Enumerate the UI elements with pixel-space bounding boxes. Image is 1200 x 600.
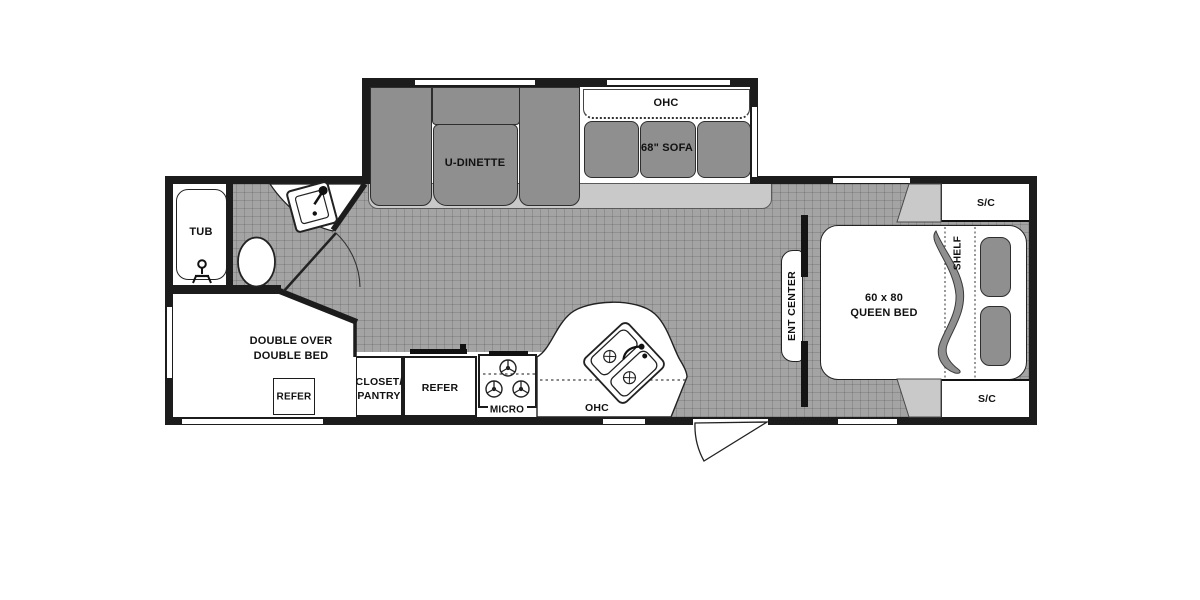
ent-center-label: ENT CENTER <box>786 271 798 341</box>
closet-label-line1: CLOSET/ <box>356 376 403 388</box>
toilet <box>238 238 275 287</box>
detail-overlay <box>0 0 1200 600</box>
tub-label: TUB <box>189 226 212 238</box>
double-bed-label-line1: DOUBLE OVER <box>250 335 333 347</box>
shelf-label: SHELF <box>953 236 964 270</box>
ohc-slideout-label: OHC <box>653 97 678 109</box>
closet-label-line2: PANTRY <box>357 390 400 402</box>
entry-door-swing <box>695 422 767 461</box>
burner-3 <box>513 381 529 397</box>
queen-bed-size-label: 60 x 80 <box>865 292 903 304</box>
sc-top-label: S/C <box>977 197 995 209</box>
sc-bottom-label: S/C <box>978 393 996 405</box>
tub-faucet-icon <box>193 260 211 283</box>
ohc-kitchen-label: OHC <box>585 402 609 414</box>
bed-platform-step-top <box>897 184 941 222</box>
dinette-label: U-DINETTE <box>445 157 505 169</box>
queen-bed-label: QUEEN BED <box>850 307 917 319</box>
stove-burners <box>486 360 529 397</box>
double-bed-label-line2: DOUBLE BED <box>254 350 329 362</box>
burner-1 <box>500 360 516 376</box>
refer-front-label: REFER <box>277 392 312 403</box>
sofa-label: 68" SOFA <box>641 142 693 154</box>
micro-label: MICRO <box>490 405 524 416</box>
bathroom-door-swing-arc <box>336 233 360 287</box>
bed-platform-step-bottom <box>897 379 941 417</box>
burner-2 <box>486 381 502 397</box>
floorplan-canvas: TUB U-DINETTE OHC 68" SOFA ENT CENTER SH… <box>0 0 1200 600</box>
bathroom-door-panel <box>284 233 336 291</box>
refer-kitchen-label: REFER <box>422 382 459 394</box>
